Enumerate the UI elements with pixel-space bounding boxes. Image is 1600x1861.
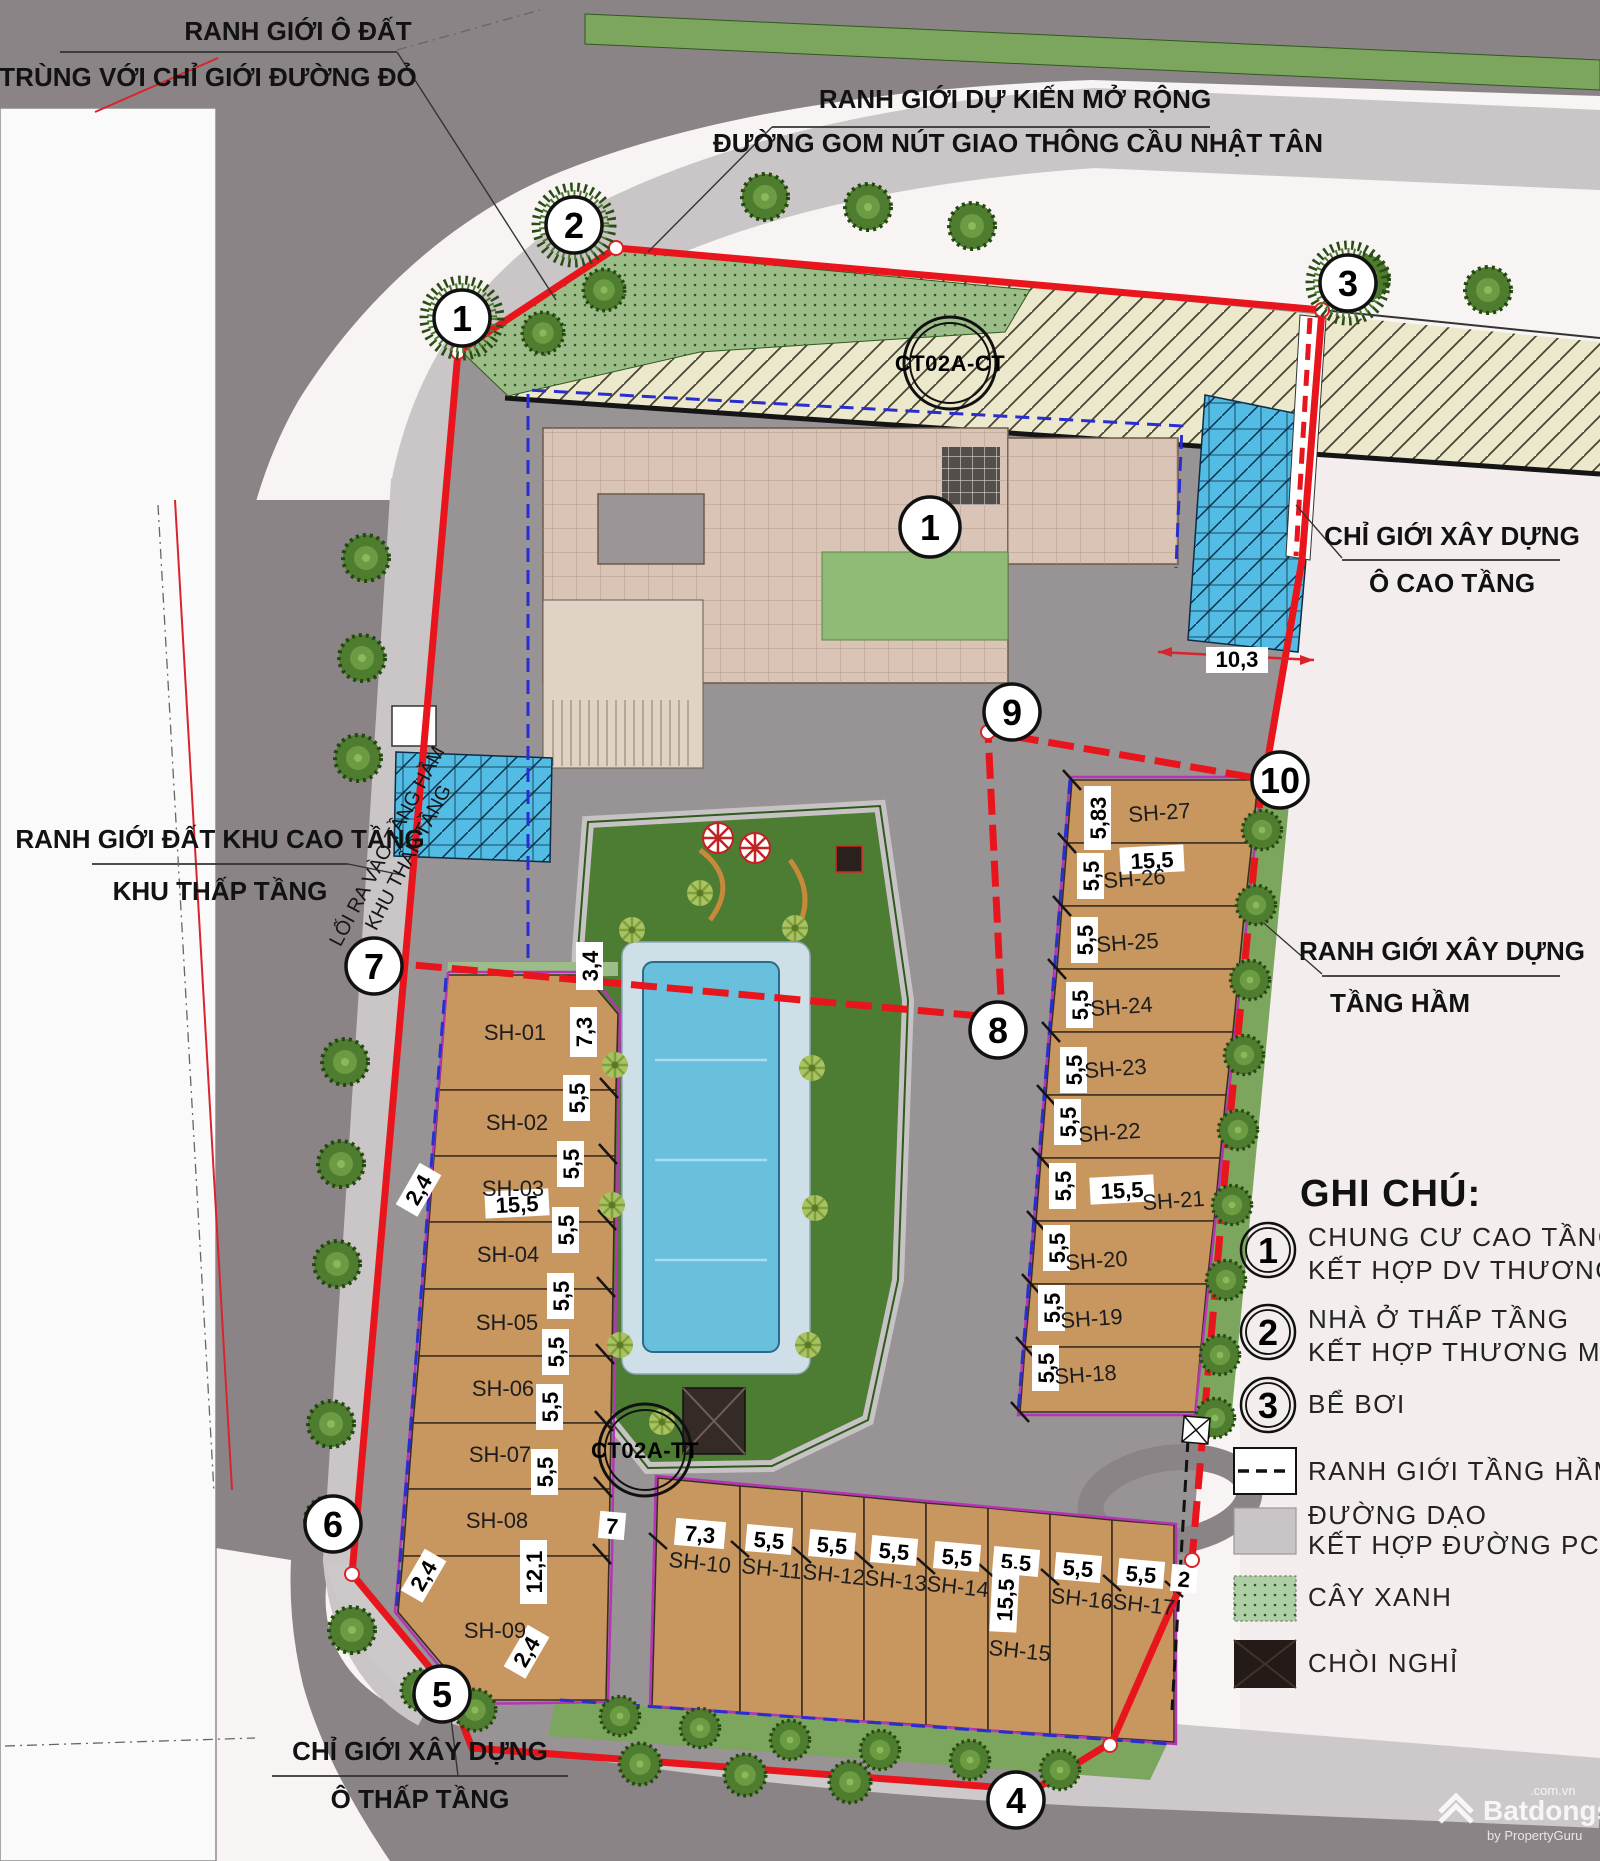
dim-width-right-b: 15,5 (1100, 1177, 1144, 1204)
dim-bottom-10: 7,3 (684, 1521, 717, 1549)
boundary-point-5: 5 (414, 1666, 470, 1722)
svg-text:1: 1 (1258, 1230, 1278, 1271)
lot-sh-14 (926, 1503, 988, 1730)
svg-text:CHÒI NGHỈ: CHÒI NGHỈ (1308, 1648, 1459, 1678)
dim-7: 7 (605, 1514, 619, 1540)
dim-depth-15: 15,5 (992, 1578, 1019, 1622)
svg-text:2: 2 (564, 205, 584, 246)
svg-text:10: 10 (1260, 760, 1300, 801)
svg-text:2: 2 (1258, 1312, 1278, 1353)
svg-text:SH-21: SH-21 (1142, 1186, 1206, 1215)
svg-text:SH-09: SH-09 (464, 1618, 526, 1643)
dim-left-04: 5,5 (554, 1215, 579, 1246)
svg-text:KHU THẤP TẦNG: KHU THẤP TẦNG (113, 876, 328, 906)
svg-text:ĐƯỜNG GOM NÚT GIAO THÔNG CẦU N: ĐƯỜNG GOM NÚT GIAO THÔNG CẦU NHẬT TÂN (713, 128, 1323, 158)
exit-marker (1182, 1416, 1210, 1444)
svg-text:CT02A-TT: CT02A-TT (591, 1438, 699, 1463)
svg-text:Ô THẤP TẦNG: Ô THẤP TẦNG (331, 1784, 510, 1814)
svg-text:SH-07: SH-07 (469, 1442, 531, 1467)
dim-2: 2 (1177, 1567, 1191, 1593)
label-ranh-gioi-mo-rong: RANH GIỚI DỰ KIẾN MỞ RỘNG (819, 83, 1211, 114)
svg-text:RANH GIỚI TẦNG HẦM: RANH GIỚI TẦNG HẦM (1308, 1456, 1600, 1486)
svg-text:7: 7 (364, 946, 384, 987)
svg-text:1: 1 (920, 507, 940, 548)
svg-text:TẦNG HẦM: TẦNG HẦM (1330, 988, 1470, 1018)
svg-text:Batdongsan: Batdongsan (1483, 1795, 1600, 1826)
dim-left-03: 5,5 (559, 1149, 584, 1180)
svg-text:SH-27: SH-27 (1128, 798, 1192, 827)
lot-sh-11 (740, 1486, 802, 1717)
svg-text:9: 9 (1002, 692, 1022, 733)
building-marker: 1 (900, 497, 960, 557)
svg-text:CÂY XANH: CÂY XANH (1308, 1582, 1452, 1612)
svg-text:4: 4 (1006, 1780, 1026, 1821)
boundary-point-9: 9 (984, 684, 1040, 740)
dim-left-05: 5,5 (549, 1281, 574, 1312)
lot-sh-10 (652, 1478, 740, 1713)
svg-text:SH-03: SH-03 (482, 1176, 544, 1201)
dim-left-06: 5,5 (544, 1337, 569, 1368)
label-ranh-gioi-dat: RANH GIỚI ĐẤT KHU CAO TẦNG (15, 824, 424, 854)
lot-sh-17 (1112, 1520, 1174, 1742)
lot-sh-13 (864, 1497, 926, 1725)
dim-left-07: 5,5 (538, 1392, 563, 1423)
svg-text:SH-06: SH-06 (472, 1376, 534, 1401)
svg-text:Ô CAO TẦNG: Ô CAO TẦNG (1369, 568, 1535, 598)
svg-text:CHUNG CƯ CAO TẦNG: CHUNG CƯ CAO TẦNG (1308, 1222, 1600, 1252)
boundary-point-8: 8 (970, 1002, 1026, 1058)
svg-text:SH-04: SH-04 (477, 1242, 539, 1267)
boundary-point-1: 1 (434, 290, 490, 346)
svg-text:TRÙNG VỚI CHỈ GIỚI ĐƯỜNG ĐỎ: TRÙNG VỚI CHỈ GIỚI ĐƯỜNG ĐỎ (0, 61, 417, 92)
svg-text:SH-20: SH-20 (1065, 1246, 1129, 1275)
svg-text:SH-01: SH-01 (484, 1020, 546, 1045)
lot-sh-12 (802, 1491, 864, 1721)
svg-text:6: 6 (323, 1504, 343, 1545)
svg-text:SH-25: SH-25 (1096, 928, 1160, 957)
svg-text:SH-19: SH-19 (1060, 1304, 1124, 1333)
svg-text:SH-18: SH-18 (1054, 1360, 1118, 1389)
label-chi-gioi-cao-tang: CHỈ GIỚI XÂY DỰNG (1324, 521, 1580, 551)
svg-text:SH-26: SH-26 (1103, 864, 1167, 893)
dim-left-09: 12,1 (522, 1551, 547, 1594)
building-lawn (822, 552, 1008, 640)
dim-left-08: 5,5 (533, 1457, 558, 1488)
parking-rows (550, 700, 690, 766)
dim-bottom-17: 5,5 (1125, 1561, 1158, 1589)
boundary-point-6: 6 (305, 1496, 361, 1552)
swimming-pool (643, 962, 779, 1352)
dim-right-21: 5,5 (1051, 1171, 1076, 1202)
svg-text:by PropertyGuru: by PropertyGuru (1487, 1828, 1582, 1843)
boundary-point-3: 3 (1320, 255, 1376, 311)
dim-bottom-13: 5,5 (878, 1538, 911, 1566)
svg-text:CT02A-CT: CT02A-CT (895, 351, 1005, 376)
dim-bottom-12: 5,5 (816, 1532, 849, 1560)
label-ranh-gioi-tang-ham: RANH GIỚI XÂY DỰNG (1299, 936, 1585, 966)
legend-title: GHI CHÚ: (1300, 1171, 1481, 1215)
label-chi-gioi-thap-tang: CHỈ GIỚI XÂY DỰNG (292, 1736, 548, 1766)
svg-text:SH-02: SH-02 (486, 1110, 548, 1135)
svg-text:BỂ BƠI: BỂ BƠI (1308, 1389, 1406, 1419)
boundary-point-2: 2 (546, 197, 602, 253)
svg-text:SH-08: SH-08 (466, 1508, 528, 1533)
svg-text:8: 8 (988, 1010, 1008, 1051)
dim-right-26: 5,5 (1079, 861, 1104, 892)
svg-text:SH-23: SH-23 (1084, 1054, 1148, 1083)
boundary-point-7: 7 (346, 938, 402, 994)
svg-text:SH-22: SH-22 (1078, 1118, 1142, 1147)
svg-text:NHÀ Ở THẤP TẦNG: NHÀ Ở THẤP TẦNG (1308, 1303, 1570, 1334)
lot-sh-16 (1050, 1514, 1112, 1738)
dim-left-01: 7,3 (572, 1017, 597, 1048)
svg-text:KẾT HỢP DV THƯƠNG MẠI: KẾT HỢP DV THƯƠNG MẠI (1308, 1255, 1600, 1285)
svg-text:5: 5 (432, 1674, 452, 1715)
dim-bottom-16: 5,5 (1062, 1555, 1095, 1583)
dim-right-25: 5,5 (1073, 925, 1098, 956)
central-park (572, 806, 908, 1468)
site-plan-canvas: 3,4 7,3 5,5 5,5 5,5 5,5 5,5 5,5 5,5 12,1… (0, 0, 1600, 1861)
svg-text:ĐƯỜNG DẠO: ĐƯỜNG DẠO (1308, 1500, 1487, 1530)
dim-103: 10,3 (1216, 647, 1259, 672)
svg-text:3: 3 (1338, 263, 1358, 304)
svg-text:3: 3 (1258, 1385, 1278, 1426)
rest-hut-small (836, 846, 862, 872)
dim-34: 3,4 (578, 950, 603, 981)
svg-text:KẾT HỢP ĐƯỜNG PCCC: KẾT HỢP ĐƯỜNG PCCC (1308, 1530, 1600, 1560)
svg-text:KẾT HỢP THƯƠNG MẠI: KẾT HỢP THƯƠNG MẠI (1308, 1337, 1600, 1367)
dim-bottom-11: 5,5 (753, 1527, 786, 1555)
svg-text:SH-05: SH-05 (476, 1310, 538, 1335)
svg-text:SH-24: SH-24 (1090, 992, 1154, 1021)
tower-roof (598, 494, 704, 564)
adjacent-parcel (0, 108, 216, 1861)
boundary-point-10: 10 (1252, 752, 1308, 808)
dim-bottom-14: 5,5 (941, 1544, 974, 1572)
label-ranh-gioi-o-dat: RANH GIỚI Ô ĐẤT (184, 16, 411, 46)
svg-text:1: 1 (452, 298, 472, 339)
svg-text:.com.vn: .com.vn (1530, 1783, 1576, 1798)
boundary-point-4: 4 (988, 1772, 1044, 1828)
dim-right-27: 5,83 (1086, 797, 1111, 840)
dim-left-02: 5,5 (565, 1083, 590, 1114)
